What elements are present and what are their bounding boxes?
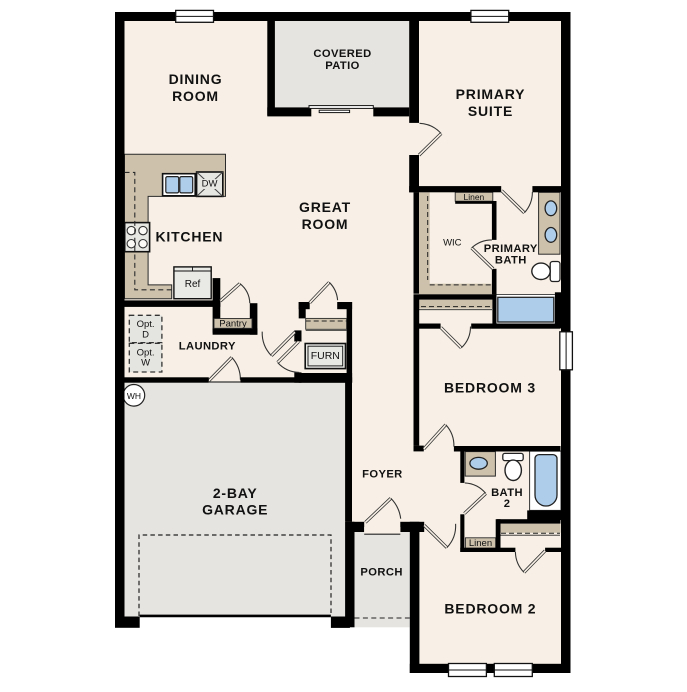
svg-text:DINING: DINING [169, 71, 223, 87]
svg-text:GARAGE: GARAGE [202, 501, 268, 517]
svg-text:W: W [141, 358, 150, 369]
svg-text:2-BAY: 2-BAY [213, 485, 258, 501]
svg-text:Linen: Linen [463, 192, 484, 202]
svg-text:WH: WH [127, 391, 141, 401]
svg-text:Opt.: Opt. [137, 347, 155, 358]
svg-text:PATIO: PATIO [325, 60, 360, 72]
svg-text:PRIMARY: PRIMARY [456, 86, 526, 102]
svg-text:2: 2 [504, 498, 511, 510]
svg-text:Linen: Linen [469, 538, 492, 549]
svg-text:SUITE: SUITE [468, 103, 513, 119]
svg-text:Pantry: Pantry [219, 318, 247, 329]
svg-text:FURN: FURN [311, 350, 340, 362]
svg-text:FOYER: FOYER [362, 469, 403, 481]
svg-text:PRIMARY: PRIMARY [484, 243, 538, 255]
svg-text:GREAT: GREAT [299, 199, 351, 215]
svg-text:Ref: Ref [185, 279, 201, 290]
svg-text:BATH: BATH [495, 255, 527, 267]
svg-text:WIC: WIC [443, 238, 462, 249]
svg-text:ROOM: ROOM [302, 216, 349, 232]
svg-text:PORCH: PORCH [360, 567, 402, 579]
svg-text:COVERED: COVERED [313, 48, 371, 60]
svg-text:D: D [142, 329, 149, 340]
svg-text:KITCHEN: KITCHEN [155, 229, 223, 245]
svg-text:BEDROOM 2: BEDROOM 2 [444, 600, 536, 616]
svg-text:Opt.: Opt. [137, 319, 155, 330]
svg-text:ROOM: ROOM [172, 88, 219, 104]
svg-text:LAUNDRY: LAUNDRY [179, 341, 236, 353]
svg-text:BEDROOM 3: BEDROOM 3 [444, 379, 536, 395]
svg-text:DW: DW [202, 179, 218, 190]
